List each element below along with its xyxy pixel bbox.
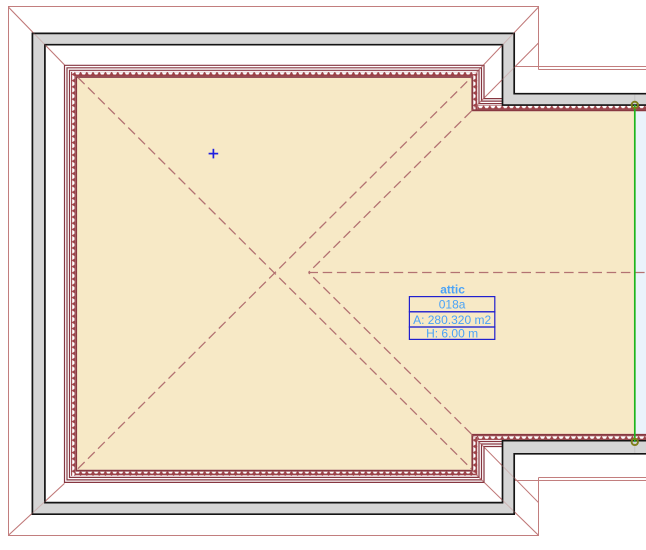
svg-text:A: 280.320 m2: A: 280.320 m2 [413,313,491,327]
svg-text:attic: attic [440,283,465,297]
svg-text:018a: 018a [439,298,466,312]
svg-text:H: 6.00 m: H: 6.00 m [426,327,478,341]
